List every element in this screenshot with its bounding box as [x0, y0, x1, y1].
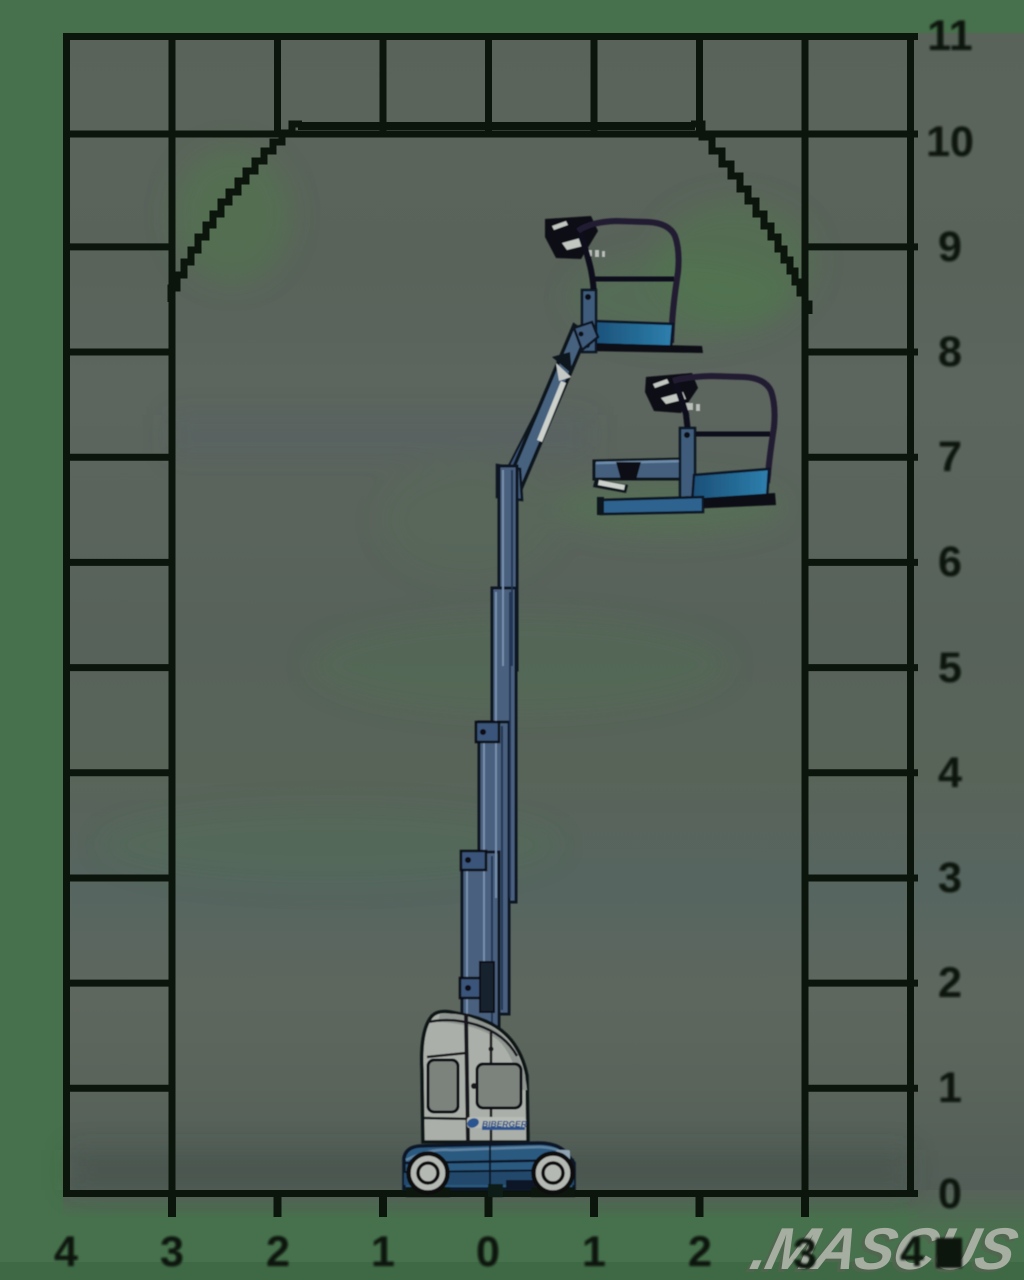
svg-text:.MASCUS: .MASCUS: [745, 1216, 1024, 1280]
svg-text:1: 1: [938, 1064, 962, 1112]
svg-text:3: 3: [938, 854, 962, 902]
svg-text:3: 3: [160, 1228, 184, 1276]
svg-text:11: 11: [927, 12, 972, 60]
svg-text:2: 2: [688, 1228, 712, 1276]
svg-text:2: 2: [266, 1228, 290, 1276]
svg-text:4: 4: [54, 1228, 78, 1276]
svg-text:8: 8: [938, 328, 962, 376]
svg-text:0: 0: [938, 1170, 962, 1218]
svg-text:9: 9: [938, 223, 962, 271]
svg-text:10: 10: [926, 118, 974, 166]
svg-text:1: 1: [582, 1228, 606, 1276]
svg-text:2: 2: [938, 959, 962, 1007]
svg-text:7: 7: [938, 433, 962, 481]
svg-text:0: 0: [476, 1228, 500, 1276]
svg-text:3: 3: [793, 1230, 817, 1278]
svg-text:4: 4: [938, 749, 962, 797]
svg-text:4: 4: [900, 1228, 924, 1276]
svg-text:5: 5: [938, 644, 962, 692]
svg-text:6: 6: [938, 538, 962, 586]
svg-text:1: 1: [371, 1228, 395, 1276]
